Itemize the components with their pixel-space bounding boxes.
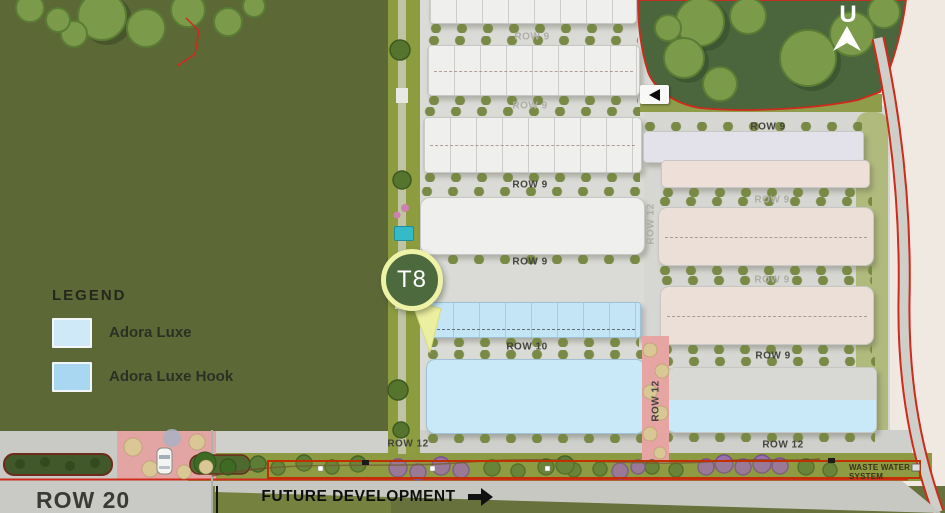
legend-item-adora-luxe-hook: Adora Luxe Hook	[52, 361, 233, 392]
amenity-strip	[388, 0, 420, 454]
row-label: ROW 9	[512, 257, 547, 268]
building-adora-luxe-main[interactable]	[426, 359, 645, 434]
row-label: ROW 9	[750, 122, 785, 133]
future-development-banner: FUTURE DEVELOPMENT	[243, 488, 511, 506]
row-label: ROW 12	[762, 440, 803, 451]
lot-marker-t8[interactable]: T8	[381, 249, 443, 311]
legend-label: Adora Luxe Hook	[109, 368, 233, 385]
building-row9-d	[420, 197, 645, 255]
row-label: ROW 12	[387, 439, 428, 450]
park-verge	[640, 94, 882, 112]
landscape-strip	[188, 453, 932, 481]
building-row9-b	[427, 45, 640, 96]
amenity-pad-1	[396, 88, 408, 103]
building-row9-top	[429, 0, 637, 24]
building-right-gray-half	[662, 368, 876, 400]
building-right-i	[660, 286, 874, 345]
row-label: ROW 9	[512, 180, 547, 191]
legend-label: Adora Luxe	[109, 324, 192, 341]
row-label: ROW 10	[506, 342, 547, 353]
waste-water-label: WASTE WATER SYSTEM	[849, 463, 945, 481]
building-row9-c	[423, 117, 642, 173]
building-right-h	[658, 207, 874, 266]
legend-item-adora-luxe: Adora Luxe	[52, 317, 233, 348]
frontage-shrubs	[426, 434, 643, 443]
compass-letter: U	[835, 1, 861, 29]
row-label: ROW 9	[512, 101, 547, 112]
row-label-vertical: ROW 12	[651, 380, 662, 421]
legend-title: LEGEND	[52, 287, 233, 304]
site-plan-map: U ROW 9 ROW 9 ROW 9 ROW 9 ROW 10 ROW 12 …	[0, 0, 945, 513]
building-right-pink	[661, 160, 870, 188]
row-label: ROW 9	[754, 195, 789, 206]
legend-swatch-adora-luxe-hook	[52, 362, 92, 392]
direction-sign	[640, 85, 669, 104]
building-right-lavender	[643, 131, 864, 163]
row-label: ROW 9	[754, 275, 789, 286]
row20-label: ROW 20	[36, 487, 130, 513]
lot-marker-label: T8	[397, 266, 427, 294]
right-arrow-icon	[468, 488, 493, 506]
row-label: ROW 9	[755, 351, 790, 362]
building-adora-luxe-hook[interactable]	[426, 302, 641, 338]
future-development-label: FUTURE DEVELOPMENT	[261, 488, 455, 506]
legend: LEGEND Adora Luxe Adora Luxe Hook	[52, 287, 233, 405]
row-label: ROW 9	[514, 32, 549, 43]
building-right-blue-half	[662, 400, 876, 432]
left-arrow-icon	[649, 89, 660, 101]
crosswalk-row20	[117, 431, 216, 479]
building-right-adora-luxe[interactable]	[661, 367, 877, 433]
pool	[394, 226, 414, 241]
legend-swatch-adora-luxe	[52, 318, 92, 348]
row-label-vertical: ROW 12	[646, 203, 657, 244]
